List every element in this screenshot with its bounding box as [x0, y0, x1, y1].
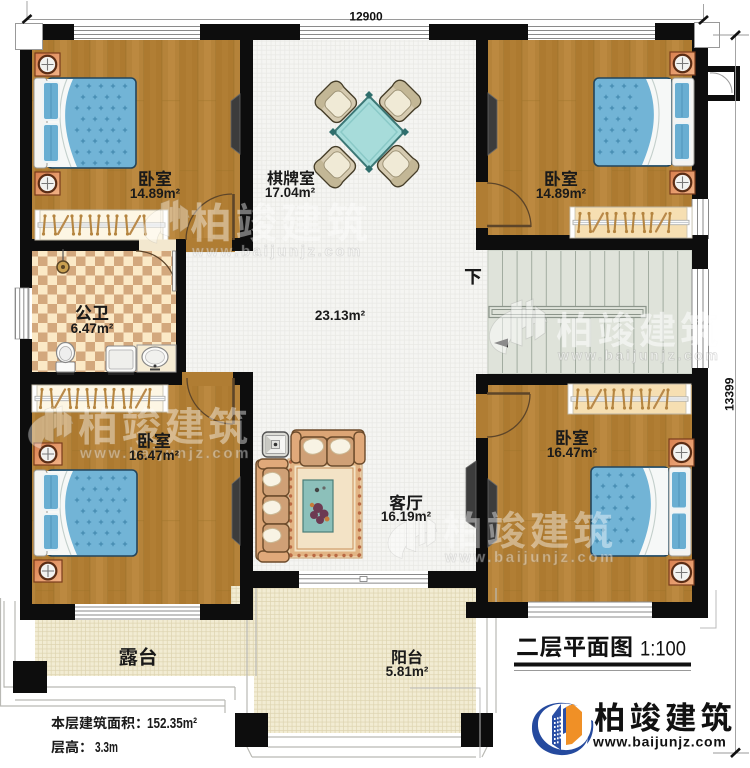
svg-text:3.3m: 3.3m [95, 739, 118, 756]
svg-text:www.baijunjz.com: www.baijunjz.com [444, 549, 616, 566]
svg-text:www.baijunjz.com: www.baijunjz.com [557, 347, 720, 363]
svg-text:152.35m²: 152.35m² [147, 715, 197, 732]
svg-text:23.13m²: 23.13m² [315, 308, 366, 323]
svg-text:www.baijunjz.com: www.baijunjz.com [191, 243, 363, 260]
svg-text:1:100: 1:100 [640, 638, 686, 661]
svg-text:14.89m²: 14.89m² [130, 186, 181, 201]
svg-text:12900: 12900 [349, 10, 383, 24]
svg-text:14.89m²: 14.89m² [536, 186, 587, 201]
svg-text:5.81m²: 5.81m² [386, 664, 429, 679]
svg-text:16.47m²: 16.47m² [547, 445, 598, 460]
svg-text:13399: 13399 [723, 377, 737, 411]
svg-text:16.19m²: 16.19m² [381, 509, 432, 524]
svg-text:17.04m²: 17.04m² [265, 185, 316, 200]
svg-text:www.baijunjz.com: www.baijunjz.com [592, 734, 727, 750]
svg-text:16.47m²: 16.47m² [129, 448, 180, 463]
svg-text:6.47m²: 6.47m² [71, 321, 114, 336]
